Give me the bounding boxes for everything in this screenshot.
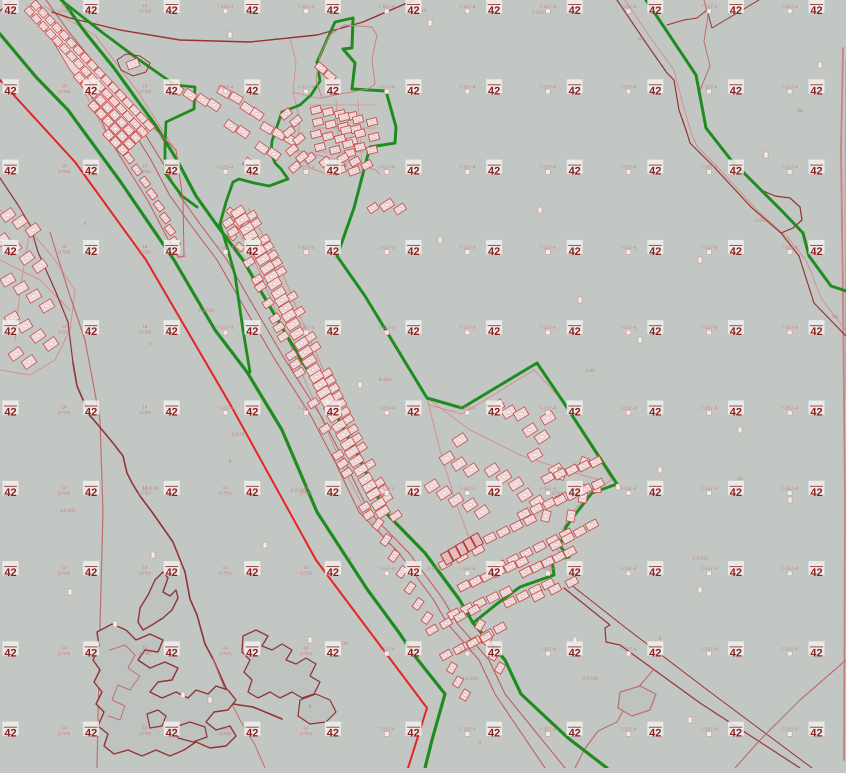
svg-text:14-305: 14-305 — [60, 508, 76, 514]
svg-text:42: 42 — [649, 85, 661, 97]
svg-text:42: 42 — [246, 647, 258, 659]
svg-text:(1759): (1759) — [219, 651, 232, 656]
svg-text:· ·: · · — [170, 0, 173, 4]
svg-text:4: 4 — [84, 221, 87, 227]
svg-text:42: 42 — [246, 85, 258, 97]
svg-text:· ·: · · — [9, 0, 12, 4]
svg-text:42: 42 — [166, 166, 178, 178]
svg-text:· ·: · · — [734, 0, 737, 4]
svg-text:42: 42 — [166, 647, 178, 659]
svg-text:42: 42 — [407, 487, 419, 499]
svg-text:· ·: · · — [654, 642, 657, 646]
svg-text:42: 42 — [488, 567, 500, 579]
svg-text:42: 42 — [649, 326, 661, 338]
svg-text:Ав: Ав — [832, 314, 838, 320]
svg-text:4: 4 — [349, 556, 352, 562]
svg-text:42: 42 — [488, 85, 500, 97]
svg-text:· ·: · · — [9, 80, 12, 84]
svg-text:2-2708: 2-2708 — [582, 676, 598, 682]
svg-text:(1759): (1759) — [300, 571, 313, 576]
svg-text:· ·: · · — [251, 321, 254, 325]
svg-text:42: 42 — [4, 5, 16, 17]
svg-text:· ·: · · — [734, 642, 737, 646]
svg-text:· ·: · · — [815, 402, 818, 406]
svg-text:42: 42 — [407, 567, 419, 579]
svg-text:· ·: · · — [492, 562, 495, 566]
svg-text:2-2706: 2-2706 — [198, 308, 214, 314]
svg-text:42: 42 — [166, 246, 178, 258]
svg-text:· ·: · · — [815, 321, 818, 325]
svg-text:42: 42 — [4, 166, 16, 178]
svg-text:(1759): (1759) — [300, 731, 313, 736]
svg-text:14-000: 14-000 — [462, 676, 478, 682]
svg-text:· ·: · · — [89, 161, 92, 165]
svg-text:· ·: · · — [654, 402, 657, 406]
svg-text:· ·: · · — [9, 321, 12, 325]
svg-text:· ·: · · — [492, 0, 495, 4]
svg-text:42: 42 — [407, 166, 419, 178]
svg-text:· ·: · · — [573, 642, 576, 646]
svg-text:42: 42 — [327, 407, 339, 419]
svg-text:· ·: · · — [251, 241, 254, 245]
svg-text:42: 42 — [810, 326, 822, 338]
svg-text:· ·: · · — [573, 402, 576, 406]
svg-text:· ·: · · — [89, 241, 92, 245]
svg-text:· ·: · · — [331, 0, 334, 4]
svg-text:(1759): (1759) — [138, 410, 151, 415]
svg-text:42: 42 — [810, 5, 822, 17]
svg-text:· ·: · · — [734, 723, 737, 727]
svg-text:(1759): (1759) — [138, 249, 151, 254]
svg-text:· ·: · · — [734, 562, 737, 566]
svg-text:42: 42 — [327, 166, 339, 178]
svg-text:· ·: · · — [170, 161, 173, 165]
svg-text:42: 42 — [407, 246, 419, 258]
svg-text:· ·: · · — [573, 482, 576, 486]
svg-text:(1759): (1759) — [58, 9, 71, 14]
svg-text:2-04: 2-04 — [755, 218, 765, 224]
svg-text:42: 42 — [569, 85, 581, 97]
svg-text:6: 6 — [309, 704, 312, 710]
svg-text:42: 42 — [569, 647, 581, 659]
svg-text:· ·: · · — [331, 723, 334, 727]
svg-text:· ·: · · — [251, 0, 254, 4]
svg-text:42: 42 — [166, 728, 178, 740]
svg-text:42: 42 — [649, 567, 661, 579]
svg-text:· ·: · · — [412, 723, 415, 727]
svg-text:· ·: · · — [573, 80, 576, 84]
svg-text:· ·: · · — [492, 723, 495, 727]
svg-text:42: 42 — [85, 567, 97, 579]
svg-text:(1759): (1759) — [300, 490, 313, 495]
svg-text:· ·: · · — [331, 562, 334, 566]
svg-text:· ·: · · — [734, 402, 737, 406]
svg-text:· ·: · · — [492, 482, 495, 486]
svg-text:· ·: · · — [734, 321, 737, 325]
svg-text:42: 42 — [730, 407, 742, 419]
svg-text:42: 42 — [649, 487, 661, 499]
svg-text:42: 42 — [810, 85, 822, 97]
svg-text:42: 42 — [85, 166, 97, 178]
svg-text:42: 42 — [85, 647, 97, 659]
svg-text:2-2706: 2-2706 — [692, 556, 708, 562]
svg-text:· ·: · · — [492, 642, 495, 646]
svg-text:4: 4 — [149, 341, 152, 347]
svg-text:(1759): (1759) — [58, 651, 71, 656]
svg-text:· ·: · · — [412, 642, 415, 646]
svg-text:· ·: · · — [89, 482, 92, 486]
svg-text:· ·: · · — [331, 642, 334, 646]
svg-text:· ·: · · — [654, 482, 657, 486]
svg-text:· ·: · · — [170, 321, 173, 325]
svg-text:(1759): (1759) — [138, 571, 151, 576]
svg-text:(1759): (1759) — [138, 490, 151, 495]
svg-text:42: 42 — [4, 487, 16, 499]
svg-text:· ·: · · — [412, 0, 415, 4]
svg-text:42: 42 — [730, 487, 742, 499]
svg-text:42: 42 — [407, 326, 419, 338]
svg-text:(1759): (1759) — [138, 330, 151, 335]
svg-text:42: 42 — [730, 647, 742, 659]
svg-text:· ·: · · — [9, 241, 12, 245]
svg-text:42: 42 — [488, 728, 500, 740]
svg-text:(1759): (1759) — [58, 330, 71, 335]
svg-text:· ·: · · — [815, 241, 818, 245]
svg-text:(1759): (1759) — [58, 89, 71, 94]
svg-text:· ·: · · — [654, 723, 657, 727]
svg-text:42: 42 — [730, 567, 742, 579]
svg-text:42: 42 — [246, 166, 258, 178]
svg-text:(1759): (1759) — [58, 490, 71, 495]
svg-text:· ·: · · — [89, 723, 92, 727]
svg-text:(1759): (1759) — [138, 89, 151, 94]
svg-text:42: 42 — [649, 407, 661, 419]
svg-text:42: 42 — [327, 728, 339, 740]
svg-text:42: 42 — [649, 5, 661, 17]
svg-text:(1759): (1759) — [138, 169, 151, 174]
svg-text:42: 42 — [246, 567, 258, 579]
svg-text:42: 42 — [569, 728, 581, 740]
svg-text:3-484: 3-484 — [379, 377, 392, 383]
svg-text:42: 42 — [488, 246, 500, 258]
svg-text:42: 42 — [488, 5, 500, 17]
svg-text:· ·: · · — [815, 161, 818, 165]
svg-text:· ·: · · — [89, 642, 92, 646]
svg-text:· ·: · · — [573, 321, 576, 325]
svg-text:· ·: · · — [9, 482, 12, 486]
svg-text:42: 42 — [4, 728, 16, 740]
svg-text:42: 42 — [569, 567, 581, 579]
svg-text:42: 42 — [327, 5, 339, 17]
svg-text:42: 42 — [327, 487, 339, 499]
svg-text:42: 42 — [166, 407, 178, 419]
svg-text:· ·: · · — [734, 241, 737, 245]
svg-text:· ·: · · — [412, 402, 415, 406]
svg-text:· ·: · · — [815, 562, 818, 566]
svg-text:42: 42 — [649, 166, 661, 178]
svg-text:42: 42 — [4, 647, 16, 659]
svg-text:42: 42 — [4, 85, 16, 97]
svg-text:42: 42 — [85, 326, 97, 338]
svg-text:42: 42 — [246, 487, 258, 499]
svg-text:42: 42 — [810, 487, 822, 499]
svg-text:42: 42 — [488, 407, 500, 419]
svg-text:42: 42 — [488, 647, 500, 659]
svg-text:42: 42 — [327, 326, 339, 338]
svg-text:· ·: · · — [251, 562, 254, 566]
svg-text:42: 42 — [166, 5, 178, 17]
svg-text:· ·: · · — [654, 80, 657, 84]
svg-text:· ·: · · — [412, 80, 415, 84]
svg-text:42: 42 — [85, 5, 97, 17]
svg-text:· ·: · · — [170, 241, 173, 245]
svg-text:об: об — [637, 36, 643, 42]
svg-text:· ·: · · — [9, 562, 12, 566]
svg-text:· ·: · · — [573, 161, 576, 165]
svg-text:42: 42 — [407, 85, 419, 97]
svg-text:· ·: · · — [573, 0, 576, 4]
svg-text:42: 42 — [569, 5, 581, 17]
svg-text:42: 42 — [327, 567, 339, 579]
svg-text:3-48: 3-48 — [585, 368, 595, 374]
svg-text:42: 42 — [4, 407, 16, 419]
svg-text:· ·: · · — [170, 642, 173, 646]
svg-text:42: 42 — [488, 166, 500, 178]
svg-text:(1759): (1759) — [138, 731, 151, 736]
svg-text:(1759): (1759) — [138, 651, 151, 656]
svg-text:· ·: · · — [815, 723, 818, 727]
svg-text:42: 42 — [166, 487, 178, 499]
svg-text:(1759): (1759) — [58, 731, 71, 736]
svg-text:(1759): (1759) — [58, 169, 71, 174]
svg-text:42: 42 — [246, 728, 258, 740]
svg-text:· ·: · · — [9, 642, 12, 646]
svg-text:42: 42 — [810, 246, 822, 258]
svg-text:42: 42 — [246, 326, 258, 338]
svg-text:42: 42 — [730, 246, 742, 258]
svg-text:· ·: · · — [734, 161, 737, 165]
svg-text:· ·: · · — [573, 723, 576, 727]
svg-text:42: 42 — [85, 728, 97, 740]
svg-text:· ·: · · — [89, 80, 92, 84]
svg-text:(1759): (1759) — [138, 9, 151, 14]
svg-text:42: 42 — [166, 326, 178, 338]
svg-text:(1759): (1759) — [58, 249, 71, 254]
svg-text:42: 42 — [730, 166, 742, 178]
svg-text:· ·: · · — [412, 241, 415, 245]
svg-text:· ·: · · — [654, 321, 657, 325]
svg-text:· ·: · · — [170, 482, 173, 486]
svg-text:42: 42 — [730, 326, 742, 338]
svg-text:· ·: · · — [9, 161, 12, 165]
svg-text:· ·: · · — [331, 321, 334, 325]
svg-text:· ·: · · — [492, 241, 495, 245]
svg-text:· ·: · · — [654, 0, 657, 4]
svg-text:42: 42 — [85, 487, 97, 499]
svg-text:42: 42 — [327, 647, 339, 659]
svg-text:42: 42 — [488, 487, 500, 499]
svg-text:· ·: · · — [331, 482, 334, 486]
svg-text:· ·: · · — [734, 482, 737, 486]
svg-text:· ·: · · — [573, 241, 576, 245]
svg-text:42: 42 — [810, 567, 822, 579]
svg-text:42: 42 — [730, 5, 742, 17]
svg-text:42: 42 — [810, 407, 822, 419]
svg-text:· ·: · · — [251, 642, 254, 646]
svg-text:· ·: · · — [251, 80, 254, 84]
svg-text:2-2706: 2-2706 — [427, 566, 443, 572]
svg-text:42: 42 — [85, 246, 97, 258]
svg-text:· ·: · · — [654, 562, 657, 566]
svg-text:· ·: · · — [654, 241, 657, 245]
svg-text:Ав: Ав — [797, 108, 803, 114]
svg-text:42: 42 — [810, 647, 822, 659]
svg-text:· ·: · · — [492, 402, 495, 406]
svg-text:42: 42 — [649, 246, 661, 258]
svg-text:4: 4 — [229, 459, 232, 465]
svg-text:42: 42 — [569, 246, 581, 258]
svg-text:(1759): (1759) — [300, 651, 313, 656]
svg-text:· ·: · · — [89, 402, 92, 406]
svg-text:42: 42 — [327, 246, 339, 258]
svg-text:· ·: · · — [9, 723, 12, 727]
svg-text:3-070: 3-070 — [232, 432, 245, 438]
svg-text:· ·: · · — [251, 402, 254, 406]
svg-text:· ·: · · — [331, 241, 334, 245]
svg-text:· ·: · · — [815, 0, 818, 4]
svg-text:42: 42 — [569, 166, 581, 178]
svg-text:· ·: · · — [331, 402, 334, 406]
svg-text:(1759): (1759) — [58, 410, 71, 415]
svg-text:· ·: · · — [492, 161, 495, 165]
svg-text:· ·: · · — [412, 482, 415, 486]
svg-text:42: 42 — [4, 326, 16, 338]
svg-text:42: 42 — [166, 567, 178, 579]
svg-text:42: 42 — [730, 85, 742, 97]
svg-text:42: 42 — [407, 5, 419, 17]
svg-text:42: 42 — [246, 407, 258, 419]
svg-text:(1759): (1759) — [219, 490, 232, 495]
svg-text:42: 42 — [649, 647, 661, 659]
svg-text:· ·: · · — [89, 321, 92, 325]
svg-text:42: 42 — [4, 567, 16, 579]
svg-text:· ·: · · — [815, 482, 818, 486]
svg-text:42: 42 — [810, 728, 822, 740]
svg-text:· ·: · · — [89, 562, 92, 566]
svg-text:· ·: · · — [170, 562, 173, 566]
svg-text:· ·: · · — [815, 642, 818, 646]
svg-text:42: 42 — [246, 246, 258, 258]
svg-text:(1759): (1759) — [219, 571, 232, 576]
svg-text:· ·: · · — [9, 402, 12, 406]
svg-text:· ·: · · — [815, 80, 818, 84]
svg-text:· ·: · · — [251, 723, 254, 727]
svg-text:42: 42 — [569, 407, 581, 419]
svg-text:· ·: · · — [251, 482, 254, 486]
svg-text:42: 42 — [488, 326, 500, 338]
svg-text:42: 42 — [166, 85, 178, 97]
svg-text:42: 42 — [4, 246, 16, 258]
svg-text:· ·: · · — [170, 402, 173, 406]
svg-text:42: 42 — [569, 326, 581, 338]
svg-text:· ·: · · — [492, 321, 495, 325]
svg-text:42: 42 — [569, 487, 581, 499]
svg-text:· ·: · · — [654, 161, 657, 165]
svg-text:· ·: · · — [170, 80, 173, 84]
svg-text:· ·: · · — [573, 562, 576, 566]
svg-text:4: 4 — [479, 740, 482, 746]
svg-text:· ·: · · — [251, 161, 254, 165]
svg-text:· ·: · · — [412, 161, 415, 165]
svg-text:· ·: · · — [412, 562, 415, 566]
svg-text:42: 42 — [85, 407, 97, 419]
svg-text:42: 42 — [327, 85, 339, 97]
svg-text:· ·: · · — [331, 80, 334, 84]
svg-text:42: 42 — [810, 166, 822, 178]
svg-text:· ·: · · — [412, 321, 415, 325]
svg-text:· ·: · · — [734, 80, 737, 84]
svg-text:0: 0 — [659, 636, 662, 642]
svg-text:(1759): (1759) — [219, 731, 232, 736]
svg-text:42: 42 — [649, 728, 661, 740]
svg-text:42: 42 — [407, 407, 419, 419]
svg-text:· ·: · · — [89, 0, 92, 4]
svg-text:· ·: · · — [170, 723, 173, 727]
svg-text:· ·: · · — [331, 161, 334, 165]
svg-text:42: 42 — [85, 85, 97, 97]
svg-text:42: 42 — [246, 5, 258, 17]
svg-text:· ·: · · — [492, 80, 495, 84]
svg-text:(1759): (1759) — [58, 571, 71, 576]
svg-text:42: 42 — [407, 647, 419, 659]
svg-text:42: 42 — [407, 728, 419, 740]
svg-text:42: 42 — [730, 728, 742, 740]
